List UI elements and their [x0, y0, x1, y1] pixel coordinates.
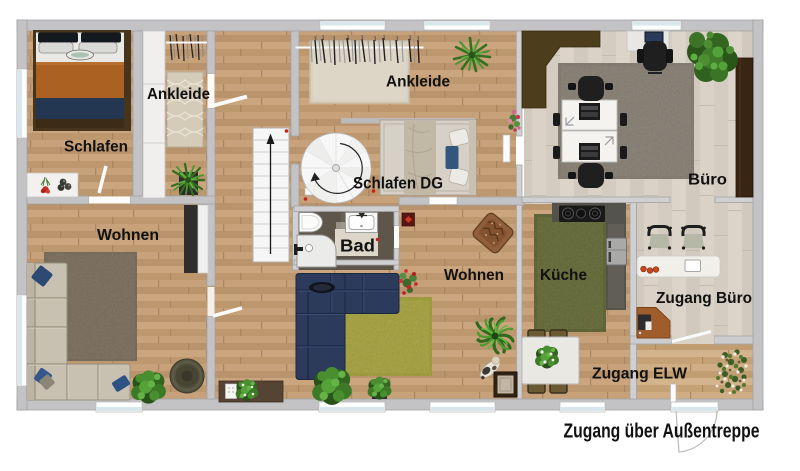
svg-text:Küche: Küche [540, 267, 587, 284]
svg-text:Wohnen: Wohnen [97, 227, 159, 244]
svg-text:Ankleide: Ankleide [147, 86, 210, 103]
svg-text:Zugang über Außentreppe: Zugang über Außentreppe [564, 421, 760, 443]
svg-text:Wohnen: Wohnen [444, 267, 504, 284]
svg-text:Büro: Büro [688, 172, 727, 189]
svg-text:Bad: Bad [340, 236, 375, 256]
svg-text:Schlafen: Schlafen [64, 139, 128, 156]
svg-text:Schlafen DG: Schlafen DG [353, 174, 443, 193]
svg-text:Ankleide: Ankleide [386, 74, 450, 91]
svg-text:Zugang ELW: Zugang ELW [592, 366, 688, 383]
svg-text:Zugang Büro: Zugang Büro [656, 290, 752, 307]
